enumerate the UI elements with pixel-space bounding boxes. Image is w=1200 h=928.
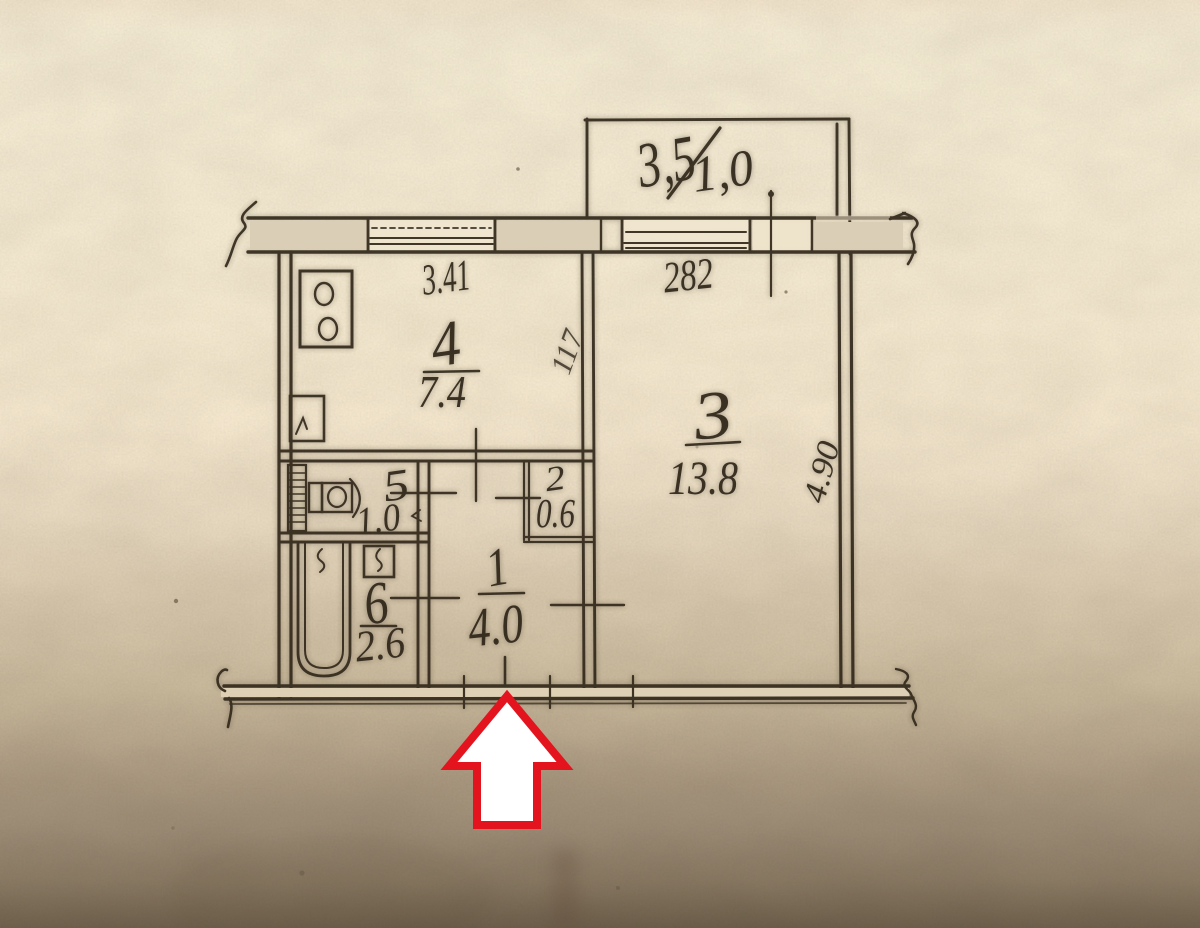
svg-text:13.8: 13.8: [668, 452, 738, 505]
svg-text:0.6: 0.6: [536, 490, 575, 536]
svg-text:282: 282: [661, 249, 716, 303]
svg-text:1.0: 1.0: [354, 495, 403, 543]
svg-text:7.4: 7.4: [418, 367, 466, 417]
svg-text:3.41: 3.41: [419, 250, 473, 305]
svg-text:4.0: 4.0: [465, 592, 526, 658]
svg-text:1,0: 1,0: [689, 140, 757, 204]
